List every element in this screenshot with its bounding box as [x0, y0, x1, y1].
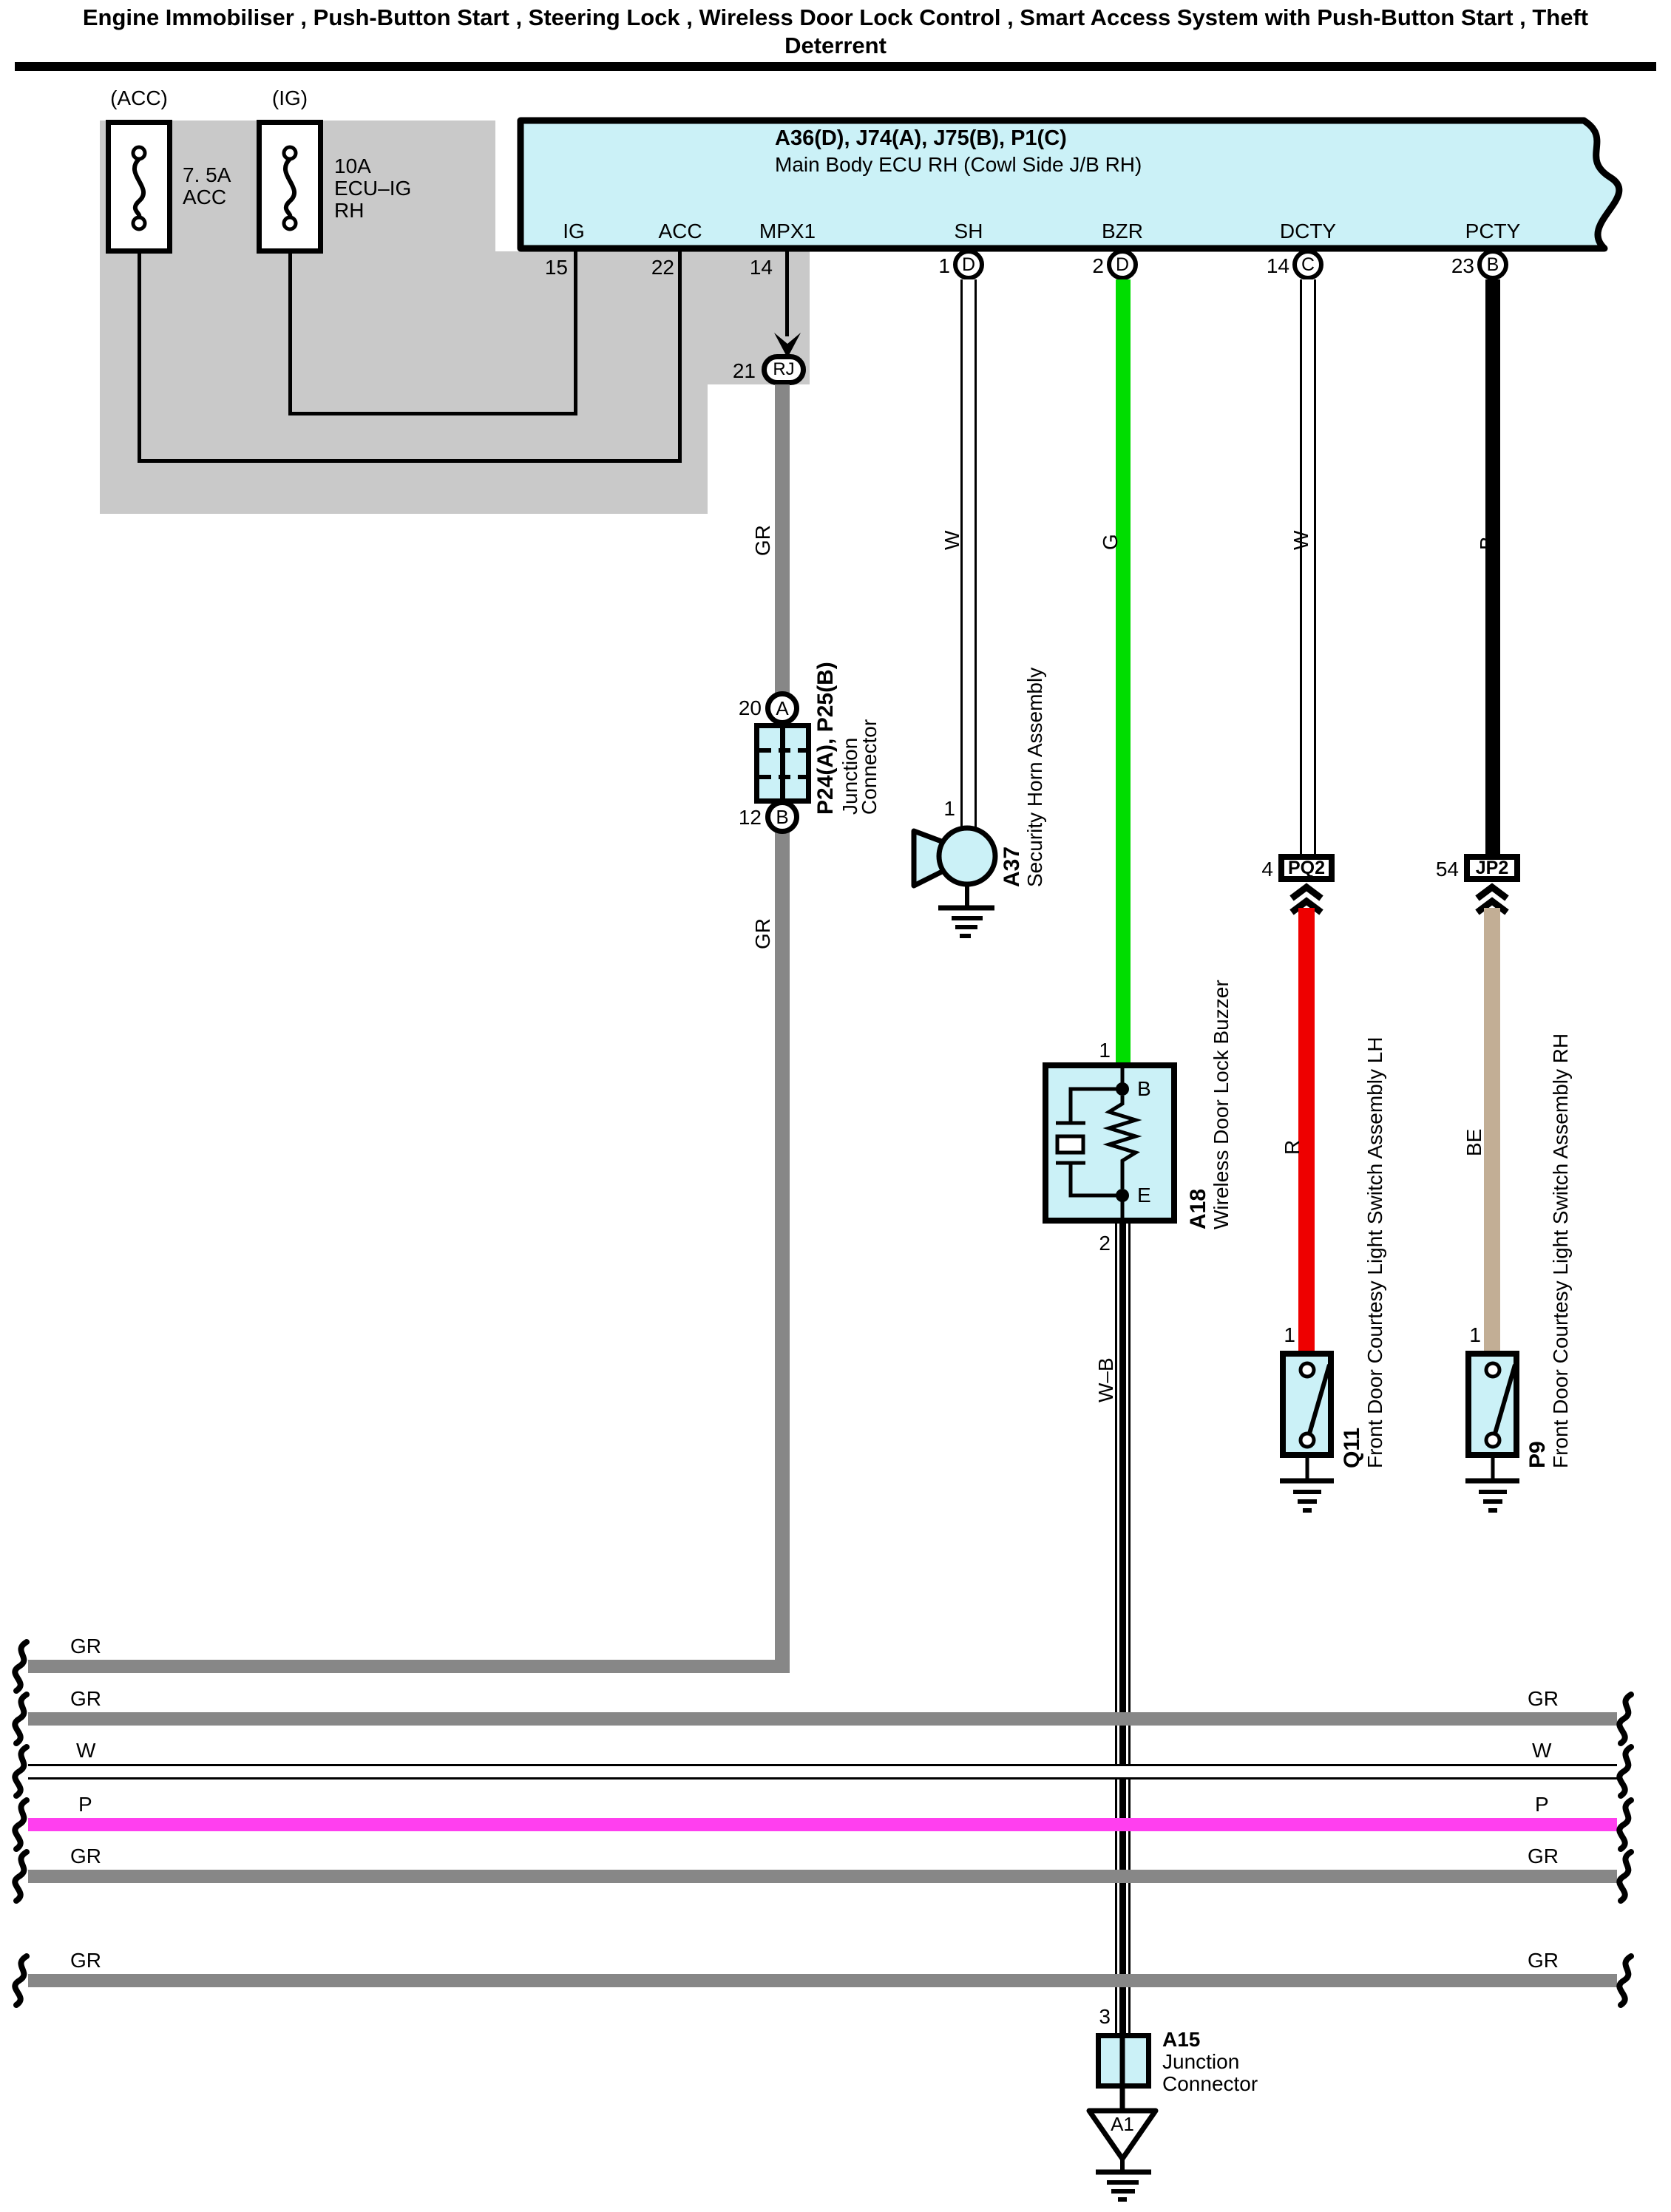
- bus6-left-break-icon: [7, 1955, 37, 2006]
- wire-acc-down: [138, 254, 141, 463]
- ecu-pin-label-acc: ACC: [628, 220, 732, 242]
- bus1-left-break-icon: [7, 1641, 37, 1692]
- ecu-connector-codes: A36(D), J74(A), J75(B), P1(C): [775, 127, 1067, 149]
- junction-circle-b: B: [765, 800, 799, 834]
- junction-name-line2: Connector: [858, 719, 881, 815]
- bus-gr-2: [28, 1712, 1617, 1726]
- title-rule: [15, 62, 1656, 71]
- junction-pin-b-number: 12: [717, 806, 762, 829]
- junction-grid-dash1: [759, 748, 806, 753]
- rj-connector: RJ: [762, 354, 806, 385]
- bus3-left-label: W: [76, 1740, 95, 1762]
- p9-code: P9: [1525, 1441, 1550, 1468]
- bus3-left-break-icon: [7, 1745, 37, 1797]
- bus6-right-break-icon: [1612, 1955, 1641, 2006]
- junction-code: P24(A), P25(B): [813, 662, 838, 815]
- buzzer-terminal-b: B: [1137, 1078, 1151, 1100]
- bus4-right-label: P: [1535, 1794, 1549, 1816]
- fuse-acc-name: ACC: [183, 186, 226, 208]
- bus-gr-5: [28, 1870, 1617, 1883]
- a15-name-line1: Junction: [1162, 2051, 1239, 2073]
- fuse-ig-symbol-icon: [257, 120, 323, 254]
- bus-gr-1: [28, 1660, 790, 1673]
- ecu-pin-label-bzr: BZR: [1071, 220, 1174, 242]
- wire-b-pcty: [1485, 279, 1500, 854]
- buzzer-symbol-icon: [1035, 1057, 1198, 1235]
- wire-acc-horizontal: [138, 459, 682, 463]
- bus5-right-break-icon: [1612, 1850, 1641, 1902]
- bus-w: [28, 1764, 1617, 1780]
- bus2-right-break-icon: [1612, 1693, 1641, 1745]
- bus2-left-label: GR: [70, 1688, 101, 1710]
- wire-acc-up: [678, 251, 682, 463]
- p9-pin-number: 1: [1437, 1323, 1481, 1347]
- wire-mpx1-stub: [785, 251, 789, 336]
- bus2-right-label: GR: [1528, 1688, 1559, 1710]
- page-title-line2: Deterrent: [0, 33, 1671, 59]
- q11-code: Q11: [1340, 1428, 1365, 1468]
- bus6-left-label: GR: [70, 1950, 101, 1972]
- wire-wb-vertical: [1115, 1224, 1131, 2033]
- a15-ground-icon: [1079, 1996, 1176, 2211]
- wire-ig-up: [574, 251, 577, 415]
- wire-gr-vertical: [775, 384, 790, 1673]
- ecu-name: Main Body ECU RH (Cowl Side J/B RH): [775, 154, 1142, 176]
- q11-pin-number: 1: [1251, 1323, 1295, 1347]
- wire-w-dcty: [1300, 279, 1316, 854]
- ecu-pin-label-dcty: DCTY: [1256, 220, 1360, 242]
- a15-code: A15: [1162, 2029, 1200, 2051]
- wire-color-label-be: BE: [1462, 1129, 1486, 1156]
- wire-color-label-g-bzr: G: [1099, 534, 1122, 550]
- wire-r-courtesy-lh: [1298, 908, 1315, 1351]
- bus3-right-break-icon: [1612, 1745, 1641, 1797]
- bus-gr-6: [28, 1974, 1617, 1987]
- ecu-pin-number-acc: 22: [630, 256, 674, 279]
- fuse-acc-rating: 7. 5A: [183, 164, 231, 186]
- p9-switch-icon: [1457, 1346, 1553, 1523]
- bus-p: [28, 1818, 1617, 1831]
- wire-color-label-gr-upper: GR: [751, 525, 775, 556]
- bus4-right-break-icon: [1612, 1799, 1641, 1850]
- bus4-left-break-icon: [7, 1799, 37, 1850]
- horn-code: A37: [1000, 847, 1025, 887]
- a15-ground-label: A1: [1102, 2113, 1143, 2135]
- junction-grid-centerline: [780, 725, 785, 802]
- bus5-right-label: GR: [1528, 1845, 1559, 1867]
- ecu-pin-label-mpx1: MPX1: [736, 220, 839, 242]
- page-title-line1: Engine Immobiliser , Push-Button Start ,…: [0, 4, 1671, 31]
- wire-color-label-b-pcty: B: [1476, 536, 1499, 550]
- junction-circle-a: A: [765, 691, 799, 725]
- ecu-pin-label-ig: IG: [522, 220, 626, 242]
- bus3-right-label: W: [1532, 1740, 1551, 1762]
- junction-grid-dash2: [759, 775, 806, 779]
- wire-color-label-r: R: [1281, 1140, 1304, 1155]
- ecu-pin-label-pcty: PCTY: [1441, 220, 1545, 242]
- bus6-right-label: GR: [1528, 1950, 1559, 1972]
- ecu-pin-number-mpx1: 14: [728, 256, 773, 279]
- wire-color-label-wb: W–B: [1094, 1357, 1118, 1402]
- bus1-left-label: GR: [70, 1635, 101, 1658]
- wire-color-label-gr-lower: GR: [751, 918, 775, 949]
- fuse-ig-tag: (IG): [245, 87, 334, 109]
- horn-name: Security Horn Assembly: [1023, 668, 1047, 887]
- ecu-pin-number-bzr: 2: [1060, 254, 1104, 278]
- a15-name-line2: Connector: [1162, 2073, 1258, 2095]
- wire-color-label-w-dcty: W: [1289, 531, 1313, 550]
- wire-ig-horizontal: [288, 412, 577, 415]
- ecu-pin-number-pcty: 23: [1430, 254, 1474, 278]
- bus5-left-label: GR: [70, 1845, 101, 1867]
- ecu-pin-number-ig: 15: [523, 256, 568, 279]
- bus4-left-label: P: [78, 1794, 92, 1816]
- wire-w-sh: [960, 279, 977, 828]
- ecu-pin-label-sh: SH: [917, 220, 1020, 242]
- fuse-ig-name-line1: ECU–IG: [334, 177, 411, 200]
- fuse-acc-tag: (ACC): [95, 87, 183, 109]
- fuse-ig-rating: 10A: [334, 155, 371, 177]
- fuse-acc-symbol-icon: [106, 120, 172, 254]
- q11-name: Front Door Courtesy Light Switch Assembl…: [1363, 1037, 1387, 1468]
- ecu-pin-number-dcty: 14: [1245, 254, 1289, 278]
- connector-circle-bzr: D: [1107, 249, 1138, 280]
- jp2-connector: JP2: [1464, 854, 1520, 882]
- wire-ig-down: [288, 254, 292, 415]
- jp2-pin-number: 54: [1414, 858, 1459, 881]
- bus2-left-break-icon: [7, 1693, 37, 1745]
- p9-name: Front Door Courtesy Light Switch Assembl…: [1549, 1034, 1573, 1468]
- buzzer-pin-bottom-number: 2: [1066, 1232, 1111, 1255]
- pq2-connector: PQ2: [1278, 854, 1335, 882]
- pq2-pin-number: 4: [1229, 858, 1273, 881]
- buzzer-code: A18: [1186, 1189, 1211, 1229]
- connector-circle-pcty: B: [1477, 249, 1508, 280]
- wire-be-courtesy-rh: [1484, 908, 1500, 1351]
- ecu-pin-number-sh: 1: [906, 254, 950, 278]
- junction-pin-a-number: 20: [717, 696, 762, 720]
- fuse-ig-name-line2: RH: [334, 200, 364, 222]
- connector-circle-sh: D: [953, 249, 984, 280]
- buzzer-terminal-e: E: [1137, 1184, 1151, 1207]
- bus5-left-break-icon: [7, 1850, 37, 1902]
- wiring-diagram-page: Engine Immobiliser , Push-Button Start ,…: [0, 0, 1671, 2212]
- buzzer-name: Wireless Door Lock Buzzer: [1210, 980, 1233, 1229]
- connector-circle-dcty: C: [1292, 249, 1323, 280]
- wire-color-label-w-sh: W: [940, 531, 964, 550]
- wire-g-bzr: [1116, 279, 1131, 1062]
- rj-pin-number: 21: [711, 359, 756, 383]
